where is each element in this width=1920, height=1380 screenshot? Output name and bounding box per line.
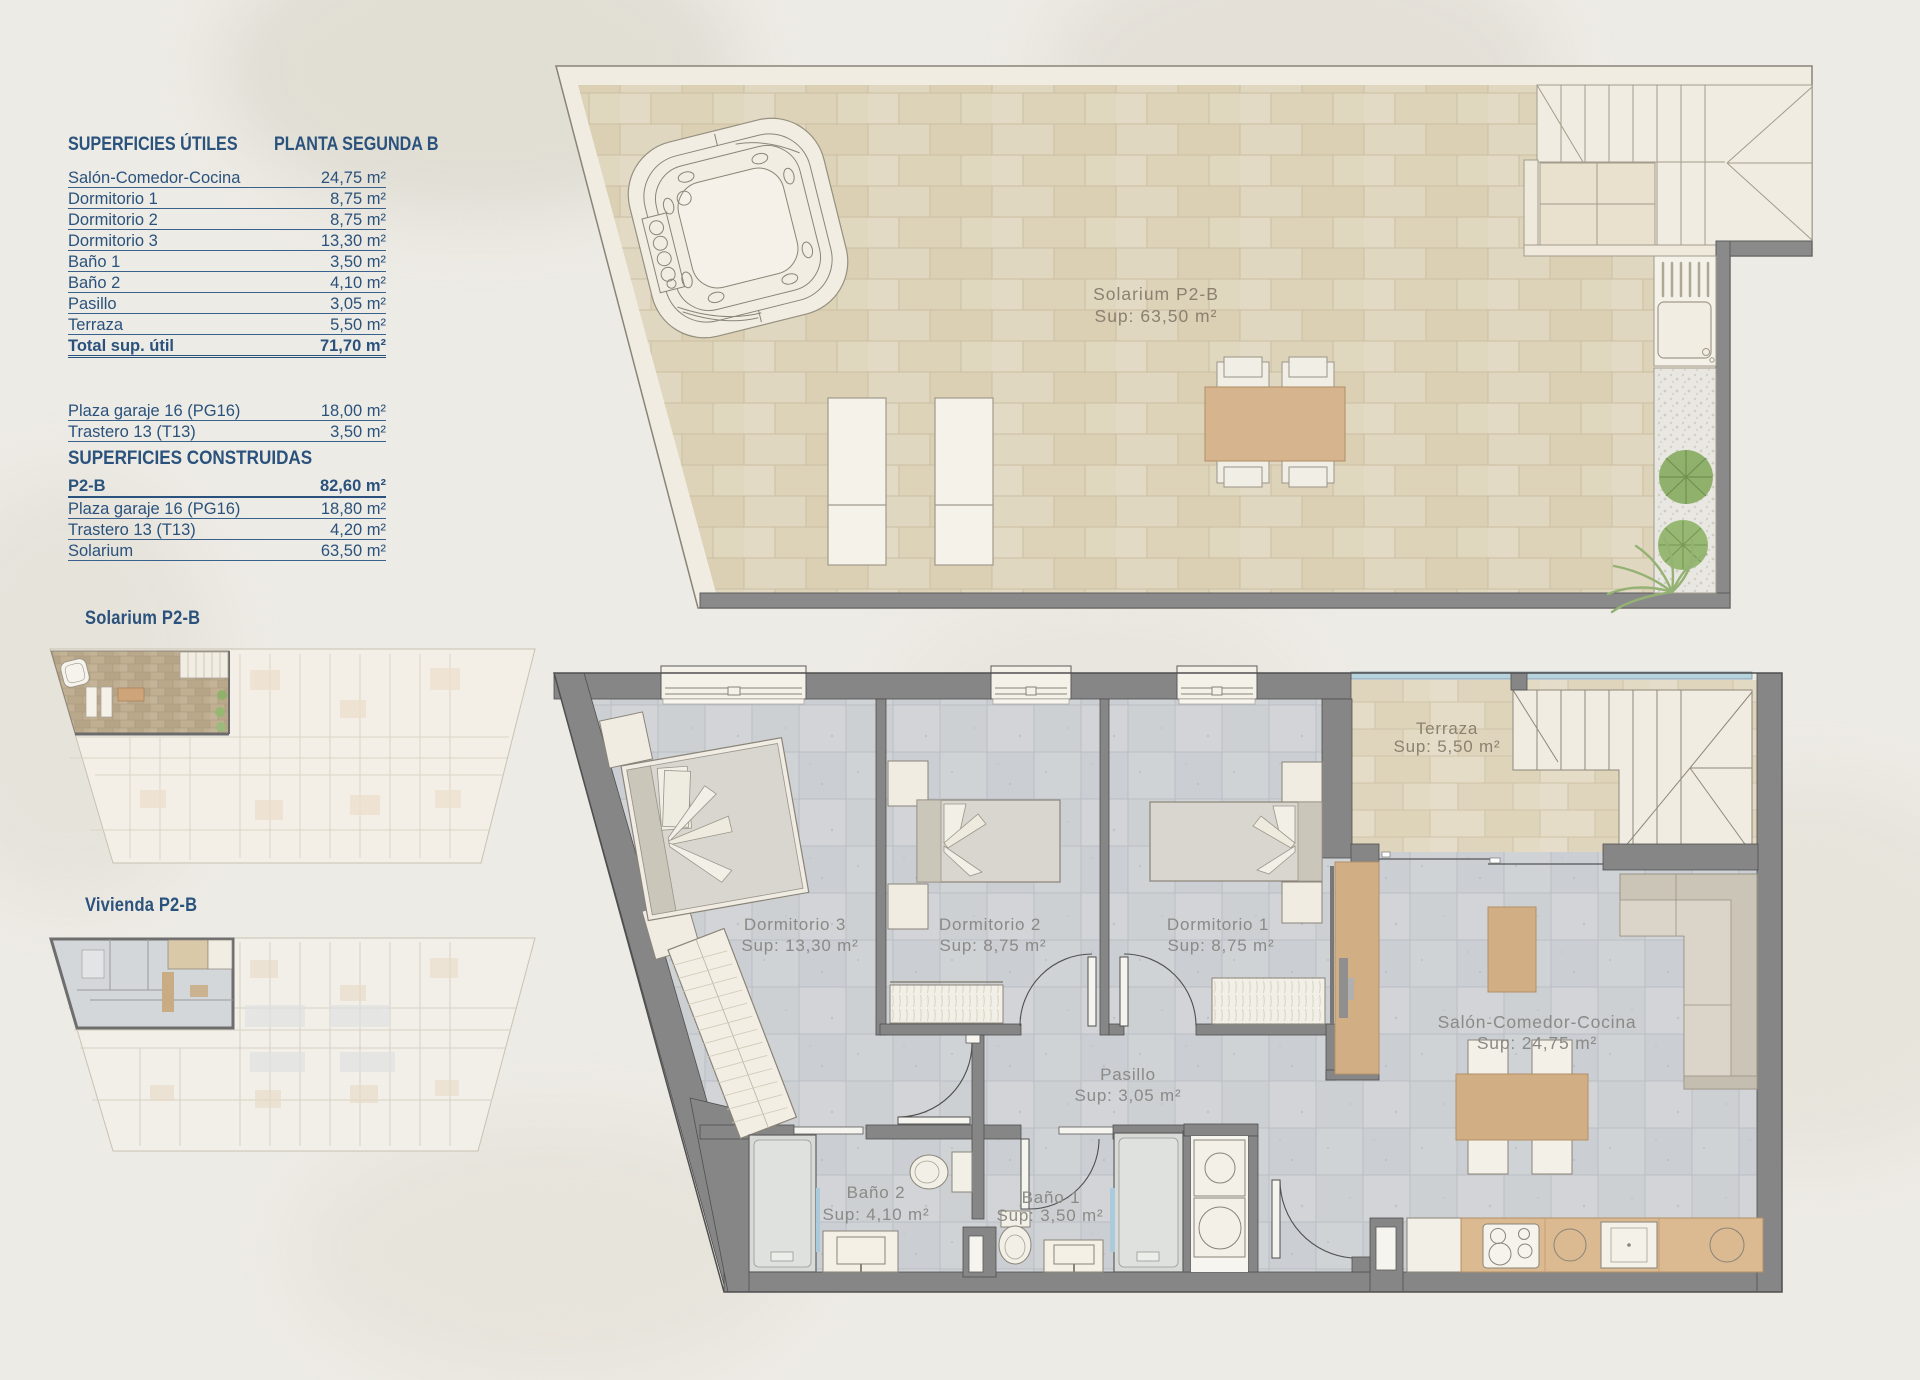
- svg-text:Sup: 3,50 m²: Sup: 3,50 m²: [997, 1206, 1104, 1225]
- svg-text:Sup: 63,50 m²: Sup: 63,50 m²: [1095, 306, 1218, 326]
- svg-text:Salón-Comedor-Cocina: Salón-Comedor-Cocina: [1438, 1012, 1637, 1032]
- svg-text:Sup: 5,50 m²: Sup: 5,50 m²: [1394, 737, 1501, 756]
- svg-text:Sup: 13,30 m²: Sup: 13,30 m²: [741, 936, 858, 955]
- svg-text:Baño 1: Baño 1: [1022, 1188, 1081, 1207]
- svg-text:Terraza: Terraza: [1416, 719, 1478, 738]
- svg-text:Sup: 8,75 m²: Sup: 8,75 m²: [1168, 936, 1275, 955]
- svg-text:Baño 2: Baño 2: [847, 1183, 906, 1202]
- svg-text:Sup: 3,05 m²: Sup: 3,05 m²: [1075, 1086, 1182, 1105]
- svg-text:Dormitorio 2: Dormitorio 2: [939, 915, 1041, 934]
- svg-text:Pasillo: Pasillo: [1100, 1065, 1156, 1084]
- svg-text:Sup: 24,75 m²: Sup: 24,75 m²: [1477, 1033, 1597, 1053]
- svg-text:Dormitorio 1: Dormitorio 1: [1167, 915, 1269, 934]
- svg-text:Sup: 4,10 m²: Sup: 4,10 m²: [823, 1205, 930, 1224]
- svg-text:Sup: 8,75 m²: Sup: 8,75 m²: [940, 936, 1047, 955]
- svg-text:Dormitorio 3: Dormitorio 3: [744, 915, 846, 934]
- svg-text:Solarium P2-B: Solarium P2-B: [1093, 284, 1219, 304]
